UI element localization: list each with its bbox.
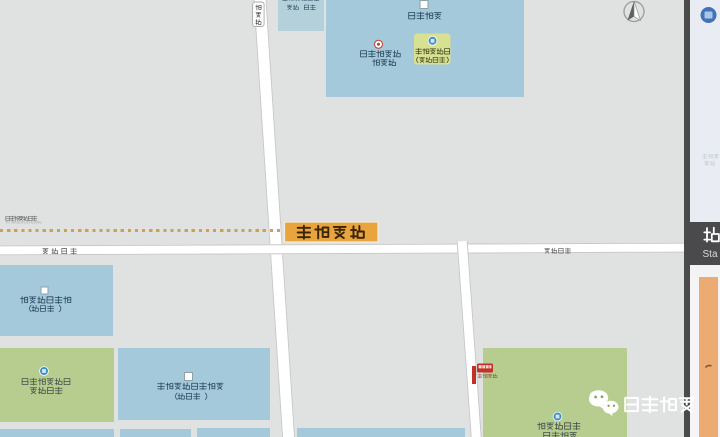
svg-text:TO WANGFUZHUANG: TO WANGFUZHUANG xyxy=(5,220,42,224)
svg-text:Sta: Sta xyxy=(703,249,718,260)
